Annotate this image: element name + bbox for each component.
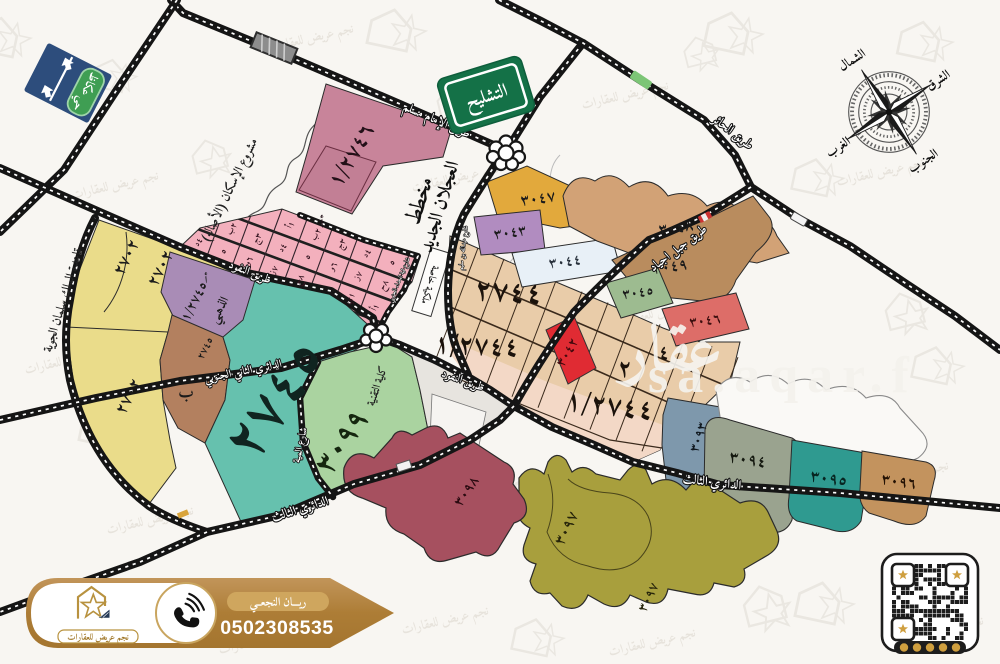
svg-text:0502308535: 0502308535 (220, 617, 333, 639)
svg-text:sa.aqar.f: sa.aqar.f (648, 347, 918, 404)
